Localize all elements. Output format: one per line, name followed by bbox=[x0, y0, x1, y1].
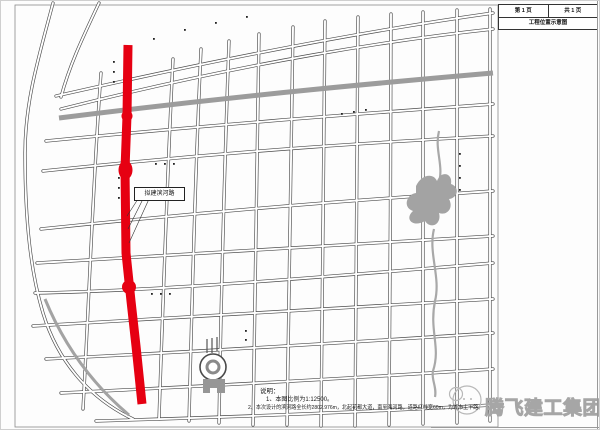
note-road-description: 2、本次设计的滨河路全长约2802.976m，北起花都大道，南至海河路，道路红线… bbox=[248, 403, 483, 411]
site-plan-map: 腾飞建工集团 bbox=[1, 1, 600, 430]
page-bottom-border bbox=[431, 427, 600, 428]
note-scale: 1、本图比例为1:12500。 bbox=[266, 394, 333, 403]
title-block-total-pages: 共 1 页 bbox=[549, 5, 598, 17]
page-right-border bbox=[597, 1, 598, 430]
roundabout-plaza bbox=[200, 337, 226, 393]
company-watermark: 腾飞建工集团 bbox=[484, 396, 600, 419]
title-block-page-number: 第 1 页 bbox=[499, 5, 549, 17]
river bbox=[432, 131, 440, 397]
drawing-title: 工程位置示意图 bbox=[499, 18, 597, 29]
lake-park-area bbox=[407, 174, 457, 225]
street-name-marks bbox=[113, 16, 461, 341]
proposed-road-label: 拟建滨河路 bbox=[134, 187, 185, 201]
title-block: 第 1 页 共 1 页 工程位置示意图 bbox=[498, 4, 598, 30]
drawing-page: 腾飞建工集团 拟建滨河路 说明： 1、本图比例为1:12500。 2、本次设计的… bbox=[0, 0, 600, 430]
